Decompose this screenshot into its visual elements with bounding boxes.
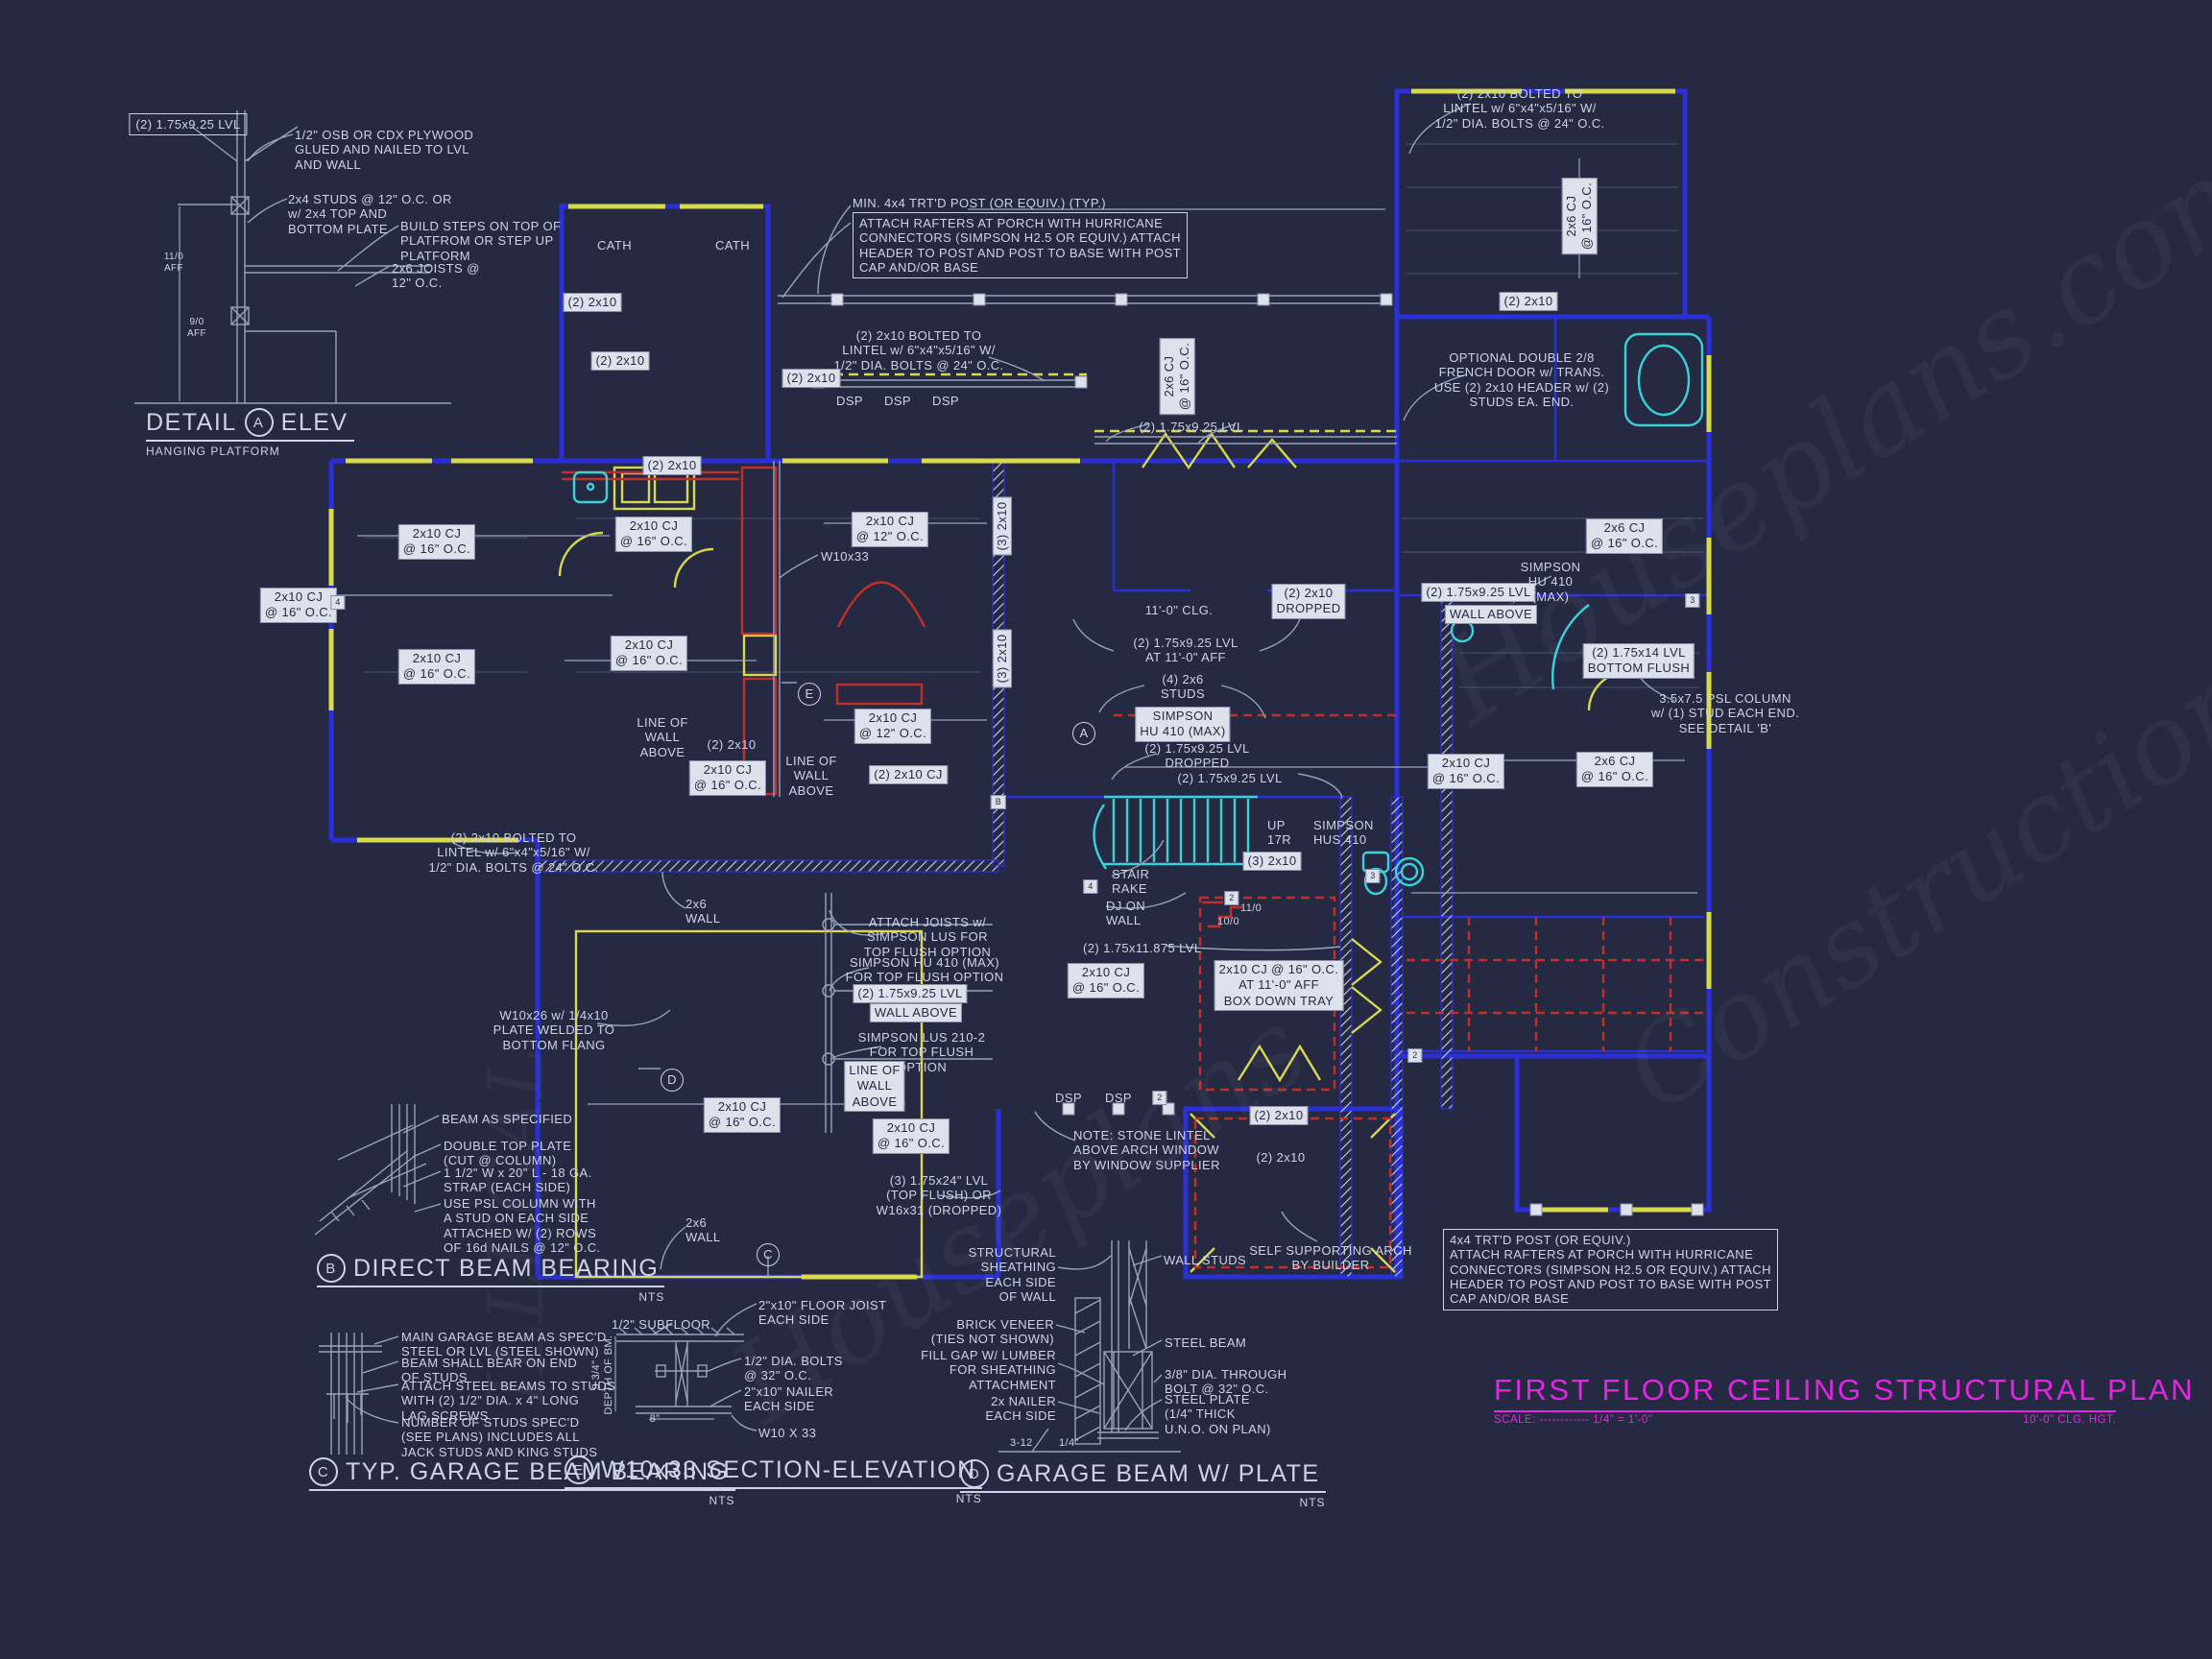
annotation-label: 2x10 CJ @ 16" O.C. [873,1118,950,1154]
detail-title-text: DIRECT BEAM BEARING [353,1255,659,1283]
detail-title-note: NTS [317,1290,664,1304]
annotation-label: B [991,795,1006,809]
annotation-label: (2) 1.75x9.25 LVL [853,984,967,1003]
annotation-label: DSP [1055,1091,1082,1105]
annotation-label: (2) 1.75x9.25 LVL AT 11'-0" AFF [1133,636,1238,665]
annotation-label: (3) 2x10 [993,630,1012,688]
annotation-label: W10 X 33 [758,1426,816,1440]
detail-title-d: DGARAGE BEAM W/ PLATENTS [960,1459,1326,1509]
annotation-label: (2) 2x10 BOLTED TO LINTEL w/ 6"x4"x5/16"… [428,830,598,875]
annotation-label: 2x10 CJ @ 12" O.C. [854,709,931,744]
annotation-label: 2x10 CJ @ 16" O.C. [398,524,475,560]
annotation-label: 1/4" [1059,1437,1079,1450]
annotation-label: (2) 2x10 [782,369,841,388]
annotation-label: (2) 2x10 [643,456,702,475]
detail-title-text: W10x33 SECTION-ELEVATION [601,1456,976,1484]
annotation-label: 3 [1685,593,1699,608]
annotation-label: NUMBER OF STUDS SPEC'D (SEE PLANS) INCLU… [401,1415,597,1459]
annotation-label: WALL ABOVE [1445,605,1537,624]
detail-title-text: ELEV [281,409,349,437]
annotation-label: 4x4 TRT'D POST (OR EQUIV.) ATTACH RAFTER… [1443,1229,1778,1310]
annotation-label: (2) 2x10 [1257,1150,1306,1165]
annotation-label: WALL STUDS [1164,1253,1246,1267]
annotation-label: CATH [715,238,750,252]
detail-reference-bubble: E [798,683,821,706]
annotation-label: 11/0 AFF [164,252,183,275]
annotation-label: (2) 2x10 [564,293,622,312]
annotation-label: 3 [1365,869,1380,883]
detail-letter-bubble: B [317,1254,346,1283]
annotation-label: 2x6 CJ @ 16" O.C. [1562,178,1598,254]
annotation-label: (2) 1.75x9.25 LVL [1177,771,1282,785]
annotation-label: SIMPSON HU 410 (MAX) [1135,707,1230,742]
annotation-label: SIMPSON HU 410 (MAX) [1521,560,1581,604]
annotation-label: 2x10 CJ @ 16" O.C. [704,1097,781,1133]
annotation-label: NOTE: STONE LINTEL ABOVE ARCH WINDOW BY … [1073,1128,1220,1172]
annotation-label: BRICK VENEER (TIES NOT SHOWN) [931,1317,1054,1347]
annotation-label: 2x10 CJ @ 16" O.C. [1428,754,1504,789]
annotation-label: BUILD STEPS ON TOP OF PLATFROM OR STEP U… [400,219,561,263]
annotation-label: OPTIONAL DOUBLE 2/8 FRENCH DOOR w/ TRANS… [1434,350,1609,409]
annotation-label: (2) 2x10 [1250,1106,1309,1125]
annotation-label: DSP [884,394,911,408]
annotation-label: UP 17R [1267,818,1291,848]
annotation-label: DSP [836,394,863,408]
annotation-label: 2x NAILER EACH SIDE [985,1394,1056,1424]
detail-reference-bubble: C [757,1243,780,1266]
annotation-label: SIMPSON HUS 410 [1313,818,1374,848]
detail-title-a: DETAILAELEVHANGING PLATFORM [146,408,354,458]
annotation-label: (4) 2x6 STUDS [1161,672,1205,702]
annotation-label: ATTACH JOISTS w/ SIMPSON LUS FOR TOP FLU… [864,915,991,959]
structural-plan-sheet: Houseplans.comConstructionsHouseplansILL… [0,0,2212,1659]
annotation-label: DSP [1105,1091,1132,1105]
annotation-label: 2x6 CJ @ 16" O.C. [1160,338,1195,415]
annotation-label: 2 [1224,891,1238,905]
annotation-label: 2x6 WALL [685,1215,721,1245]
annotation-label: (3) 1.75x24" LVL (TOP FLUSH) OR W16x31 (… [877,1173,1002,1217]
annotation-label: 2x6 JOISTS @ 12" O.C. [392,261,480,291]
detail-title-text: GARAGE BEAM W/ PLATE [997,1460,1320,1488]
annotation-label: 2x10 CJ @ 16" O.C. [689,760,766,796]
annotation-label: (2) 1.75x9.25 LVL [1421,583,1535,602]
annotation-label: 4 [330,595,345,610]
annotation-label: W10x26 w/ 1/4x10 PLATE WELDED TO BOTTOM … [493,1008,615,1052]
annotation-label: 3.5x7.5 PSL COLUMN w/ (1) STUD EACH END.… [1651,691,1799,735]
detail-reference-bubble: D [661,1069,684,1092]
annotation-label: (2) 2x10 [591,351,650,371]
annotation-label: (2) 2x10 BOLTED TO LINTEL w/ 6"x4"x5/16"… [1434,86,1604,131]
detail-letter-bubble: D [960,1459,989,1488]
annotation-label: 4 [1083,879,1097,894]
detail-letter-bubble: A [245,408,274,437]
annotation-label: 2x10 CJ @ 16" O.C. [1068,963,1144,998]
annotation-label: (3) 2x10 [993,497,1012,556]
annotation-label: STEEL PLATE (1/4" THICK U.N.O. ON PLAN) [1165,1392,1271,1436]
plan-title-text: FIRST FLOOR CEILING STRUCTURAL PLAN [1494,1373,2116,1412]
detail-title-e: EW10x33 SECTION-ELEVATIONNTS [565,1455,982,1505]
annotation-label: LINE OF WALL ABOVE [637,715,687,759]
annotation-label: (2) 1.75x9.25 LVL DROPPED [1144,741,1249,771]
annotation-label: (2) 2x10 CJ [869,765,948,784]
detail-title-prefix: DETAIL [146,409,237,437]
annotation-label: (2) 1.75x11.875 LVL [1083,941,1201,955]
annotation-label: USE PSL COLUMN WITH A STUD ON EACH SIDE … [444,1196,601,1255]
annotation-label: 2x10 CJ @ 16" O.C. [260,588,337,623]
annotation-label: 10/0 [1217,916,1239,928]
annotation-label: 1/2" DIA. BOLTS @ 32" O.C. [744,1354,843,1383]
annotation-label: STAIR RAKE [1112,867,1149,897]
annotation-label: SIMPSON HU 410 (MAX) FOR TOP FLUSH OPTIO… [846,955,1004,985]
annotation-label: (2) 1.75x9.25 LVL [129,113,247,135]
detail-reference-bubble: A [1072,722,1095,745]
detail-title-note: NTS [565,1492,982,1505]
annotation-label: DOUBLE TOP PLATE (CUT @ COLUMN) [444,1139,571,1168]
annotation-label: 2"x10" NAILER EACH SIDE [744,1384,833,1414]
annotation-label: (3) 2x10 [1243,852,1302,871]
annotation-label: FILL GAP W/ LUMBER FOR SHEATHING ATTACHM… [921,1348,1056,1392]
detail-letter-bubble: E [565,1455,593,1484]
annotation-label: ATTACH RAFTERS AT PORCH WITH HURRICANE C… [853,212,1188,278]
annotation-label: 2x10 CJ @ 16" O.C. [398,649,475,685]
annotation-label: 2x10 CJ @ 16" O.C. [611,636,687,671]
annotation-label: BEAM AS SPECIFIED [442,1112,572,1126]
annotation-label: (2) 2x10 DROPPED [1271,584,1345,619]
annotation-label: 2x10 CJ @ 16" O.C. AT 11'-0" AFF BOX DOW… [1214,960,1344,1011]
title-block: FIRST FLOOR CEILING STRUCTURAL PLAN SCAL… [1494,1373,2116,1426]
annotation-label: (2) 1.75x14 LVL BOTTOM FLUSH [1583,643,1695,679]
annotation-label: 1/2" OSB OR CDX PLYWOOD GLUED AND NAILED… [295,128,473,172]
annotation-label: 9/0 AFF [187,317,206,340]
detail-title-b: BDIRECT BEAM BEARINGNTS [317,1254,664,1304]
annotation-label: (2) 1.75x9.25 LVL [1139,420,1243,434]
annotation-label: 11/0 [1240,902,1262,915]
annotation-label: 1 1/2" W x 20" L - 18 GA. STRAP (EACH SI… [444,1166,592,1195]
annotation-label: W10x33 [821,549,869,564]
annotation-label: 3-12 [1010,1437,1033,1450]
annotation-label: STRUCTURAL SHEATHING EACH SIDE OF WALL [969,1245,1056,1304]
annotation-label: 2x10 CJ @ 12" O.C. [852,512,928,547]
annotation-label: LINE OF WALL ABOVE [785,754,836,798]
annotation-label: 2x6 WALL [685,897,721,926]
annotation-label: STEEL BEAM [1165,1335,1246,1350]
annotation-label: SELF SUPPORTING ARCH BY BUILDER [1249,1243,1412,1273]
annotation-label: LINE OF WALL ABOVE [844,1061,904,1112]
plan-ceiling-height: 10'-0" CLG. HGT. [2023,1414,2116,1426]
detail-letter-bubble: C [309,1457,338,1486]
annotation-label: CATH [597,238,632,252]
annotation-label: (2) 2x10 [1500,292,1558,311]
annotation-label: WALL ABOVE [870,1003,962,1022]
red-dashed-linework [1114,715,1704,1267]
annotation-label: DJ ON WALL [1106,899,1145,928]
annotation-label: 8" [650,1413,661,1426]
annotation-label: DSP [932,394,959,408]
annotation-label: 2x10 CJ @ 16" O.C. [615,517,692,552]
annotation-label: (2) 2x10 [708,737,757,752]
plan-scale: SCALE: ------------ 1/4" = 1'-0" [1494,1414,1652,1426]
annotation-label: 2 [1407,1048,1422,1063]
annotation-label: 2"x10" FLOOR JOIST EACH SIDE [758,1298,886,1328]
annotation-label: 11'-0" CLG. [1145,603,1214,617]
detail-title-note: NTS [960,1496,1326,1509]
detail-title-note: HANGING PLATFORM [146,445,354,458]
annotation-label: 2x6 CJ @ 16" O.C. [1576,752,1653,787]
annotation-label: 2 [1152,1091,1166,1105]
annotation-label: MIN. 4x4 TRT'D POST (OR EQUIV.) (TYP.) [853,196,1106,210]
annotation-label: (2) 2x10 BOLTED TO LINTEL w/ 6"x4"x5/16"… [833,328,1003,373]
annotation-label: 2x6 CJ @ 16" O.C. [1586,518,1663,554]
annotation-label: 1/2" SUBFLOOR [612,1317,710,1332]
